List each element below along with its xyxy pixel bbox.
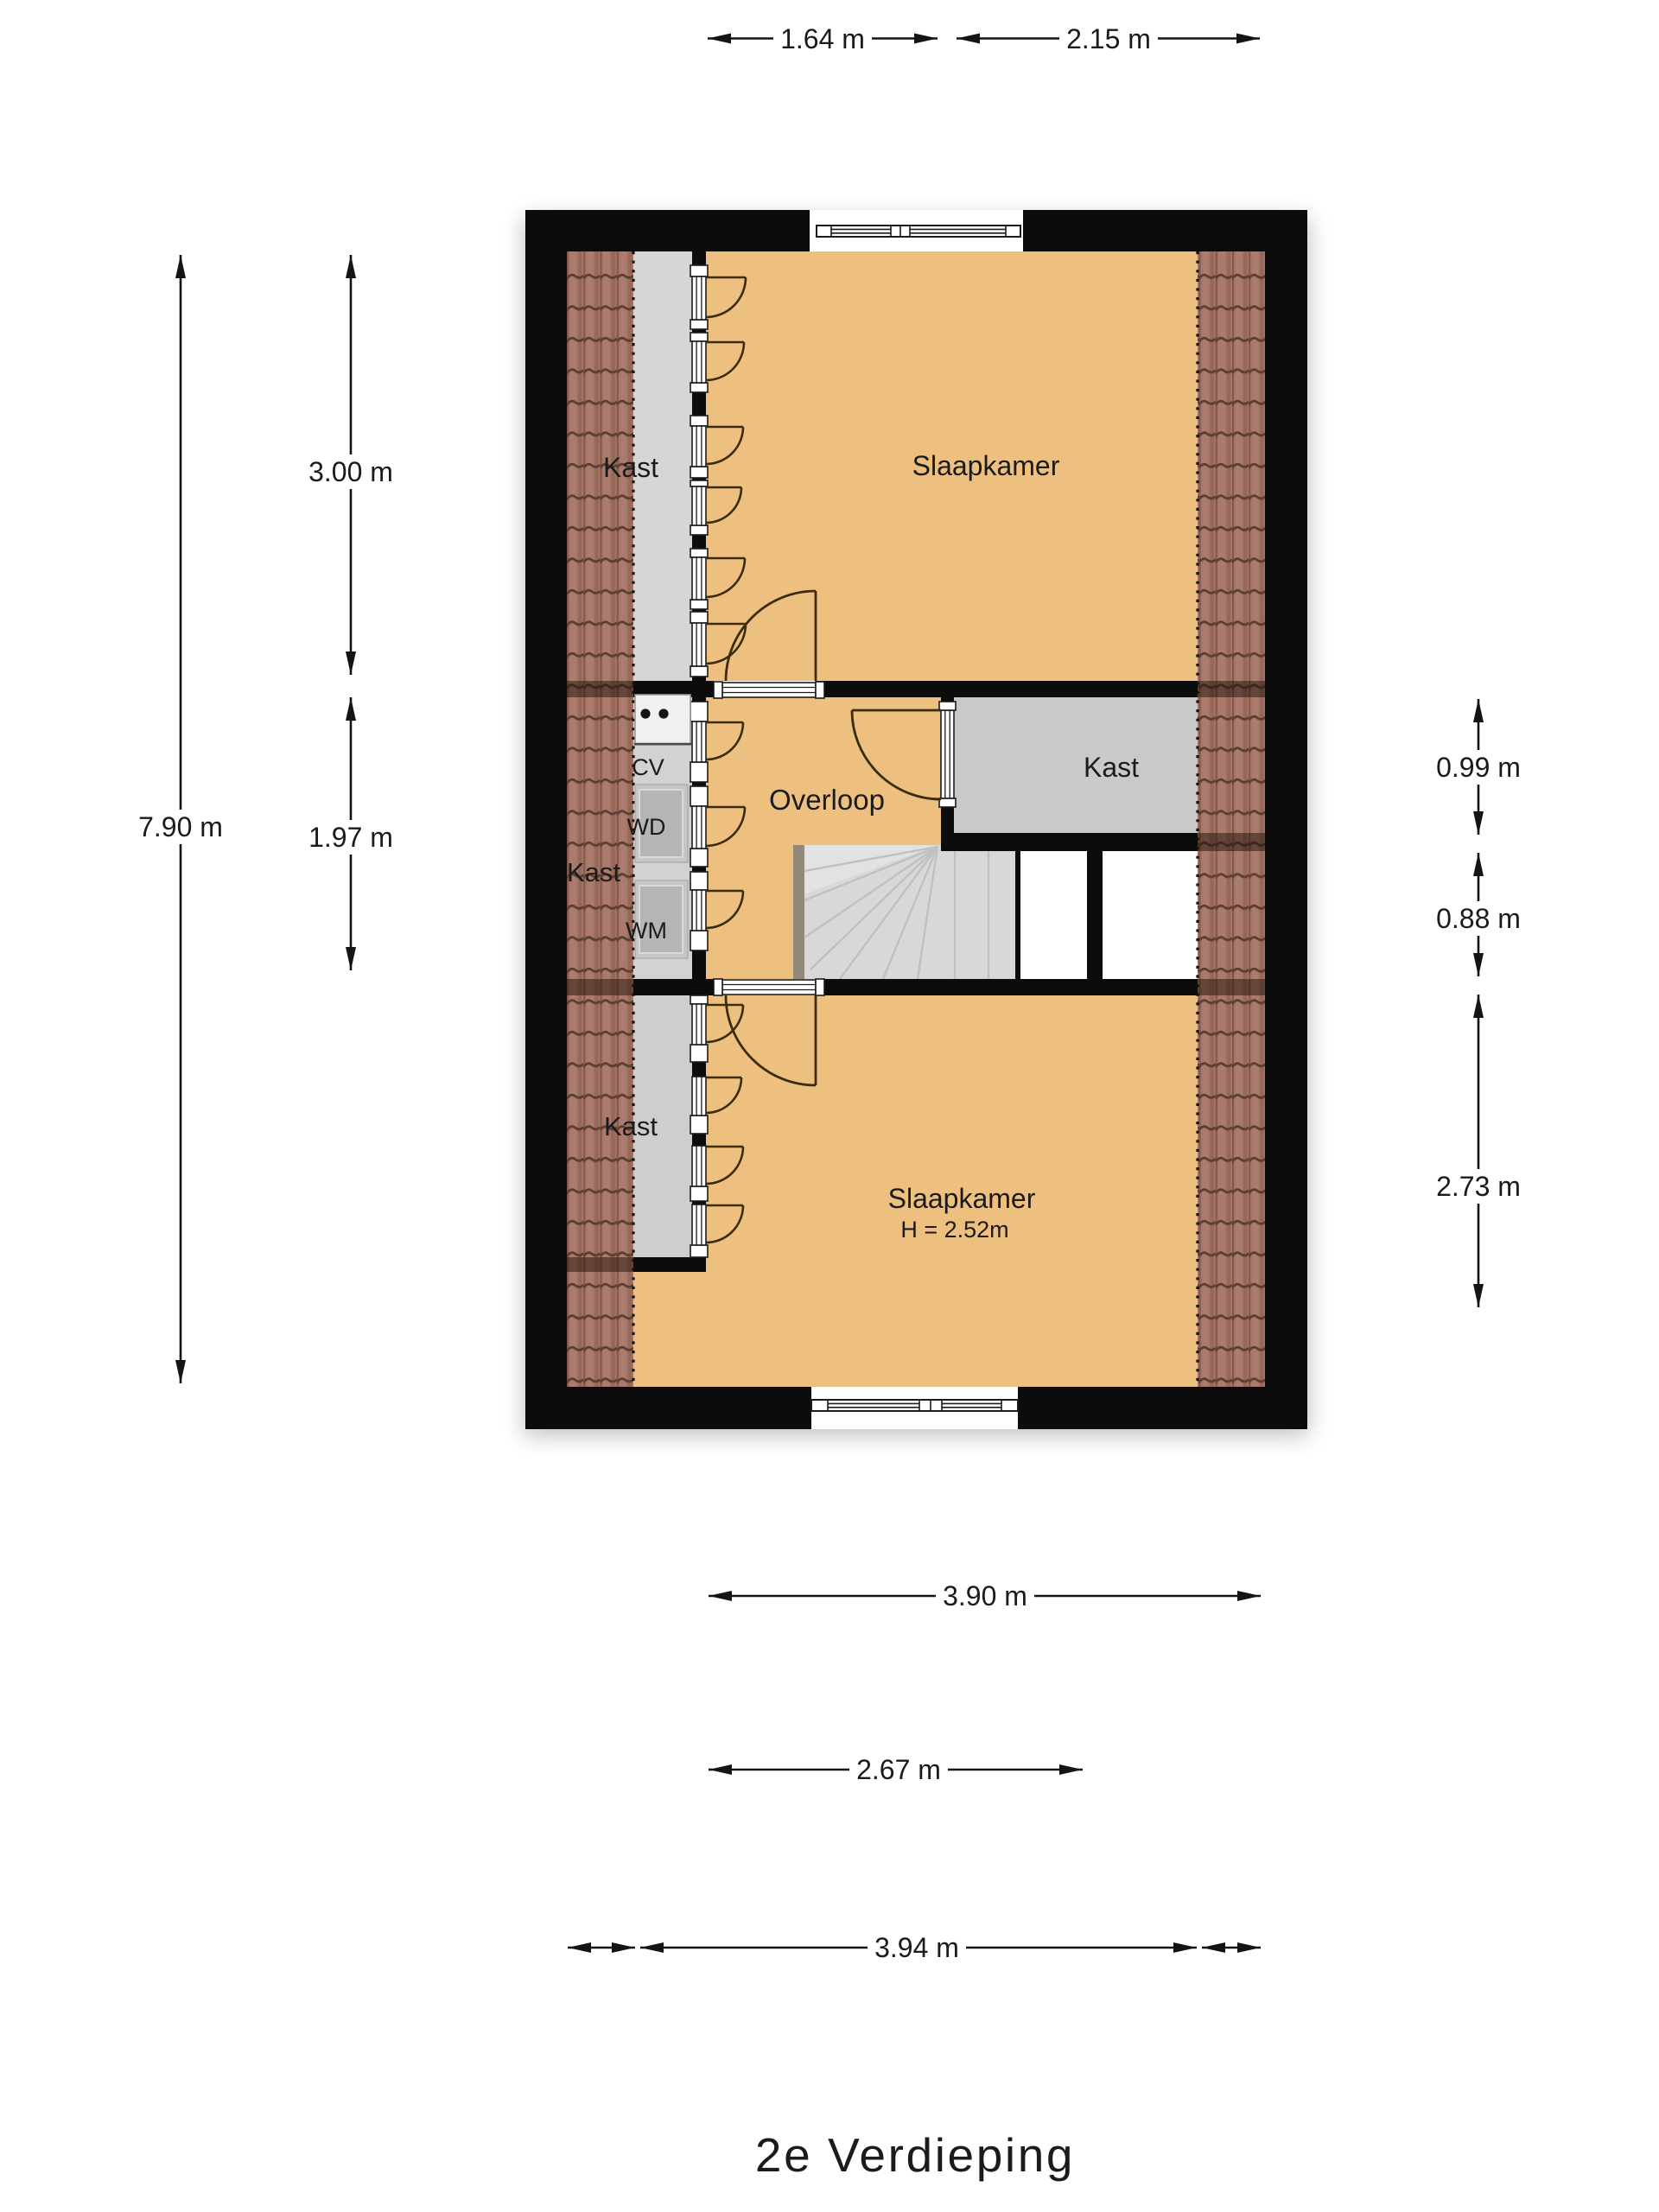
svg-text:Slaapkamer: Slaapkamer — [912, 450, 1060, 481]
svg-text:CV: CV — [632, 754, 664, 780]
svg-text:1.64 m: 1.64 m — [780, 23, 865, 54]
svg-text:0.99 m: 0.99 m — [1436, 752, 1521, 783]
svg-text:3.00 m: 3.00 m — [308, 456, 393, 487]
svg-text:2.67 m: 2.67 m — [856, 1754, 941, 1785]
svg-text:Overloop: Overloop — [769, 784, 885, 816]
svg-text:3.94 m: 3.94 m — [874, 1932, 959, 1963]
svg-text:H = 2.52m: H = 2.52m — [900, 1217, 1008, 1243]
svg-text:2.15 m: 2.15 m — [1066, 23, 1151, 54]
svg-text:Kast: Kast — [604, 1111, 658, 1141]
svg-text:2e Verdieping: 2e Verdieping — [755, 2128, 1075, 2182]
svg-text:2.73 m: 2.73 m — [1436, 1171, 1521, 1202]
svg-text:WM: WM — [626, 918, 667, 944]
svg-text:7.90 m: 7.90 m — [138, 811, 223, 842]
svg-text:Kast: Kast — [1084, 752, 1139, 783]
svg-text:Kast: Kast — [603, 452, 658, 483]
svg-text:Kast: Kast — [567, 857, 620, 887]
svg-text:WD: WD — [627, 814, 666, 840]
svg-text:3.90 m: 3.90 m — [943, 1580, 1027, 1611]
svg-text:Slaapkamer: Slaapkamer — [888, 1183, 1036, 1214]
svg-text:0.88 m: 0.88 m — [1436, 903, 1521, 934]
svg-text:1.97 m: 1.97 m — [308, 822, 393, 853]
